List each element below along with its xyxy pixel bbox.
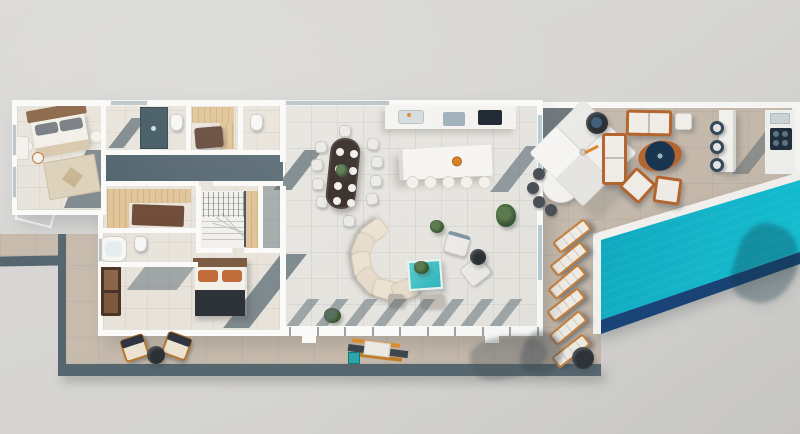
- terrace-left-strip: [66, 234, 98, 374]
- kitchen-sink: [398, 110, 424, 124]
- burner: [782, 140, 788, 146]
- island-stool: [478, 176, 491, 189]
- outdoor-sink: [770, 113, 790, 124]
- wall-openplan-west-lower: [280, 186, 286, 336]
- glass-wall-south: [285, 326, 543, 336]
- glass-mullion: [427, 327, 429, 336]
- coffee-table-plant: [414, 261, 429, 274]
- door-threshold: [302, 334, 316, 343]
- burner: [773, 140, 779, 146]
- place-setting: [348, 184, 356, 192]
- toilet: [170, 114, 183, 131]
- wall-hallway-north: [103, 150, 283, 155]
- wall-hallway-south-a: [103, 181, 199, 186]
- wall-stairs-west: [196, 186, 201, 252]
- glass-mullion: [399, 327, 401, 336]
- island-stool: [406, 176, 419, 189]
- kitchen-appliance: [443, 112, 465, 126]
- bed2-headboard: [193, 258, 247, 267]
- bathtub-basin: [105, 241, 122, 257]
- bar-stool: [710, 158, 724, 172]
- fruit-bowl: [452, 156, 463, 167]
- shower-drain: [151, 126, 156, 131]
- guest-desk: [192, 107, 234, 123]
- dining-chair: [314, 140, 328, 154]
- swimming-pool: [593, 172, 800, 334]
- side-table-round: [470, 249, 486, 265]
- bed2-blanket: [195, 290, 245, 316]
- outdoor-sofa-vertical: [602, 133, 627, 185]
- cooktop: [478, 110, 502, 125]
- hallway-floor: [103, 155, 283, 181]
- dining-chair: [366, 137, 380, 151]
- terrace-left-border: [58, 234, 66, 374]
- bbq-grill: [586, 112, 608, 134]
- burner: [773, 131, 779, 137]
- wall-master-south: [12, 210, 106, 215]
- wall-partition: [186, 105, 191, 153]
- outdoor-armchair: [652, 175, 682, 205]
- stair-tread-line: [202, 227, 244, 228]
- place-setting: [334, 182, 342, 190]
- bar-stool: [710, 121, 724, 135]
- staircase: [201, 191, 258, 248]
- dressing-counter: [107, 189, 191, 203]
- floor-plan-render: [0, 0, 800, 434]
- table-centerpiece-plant: [336, 164, 348, 177]
- stair-railing-balusters: [203, 192, 245, 217]
- sofa-cushion-seam: [605, 157, 624, 159]
- window-band: [285, 100, 390, 106]
- rug-motif: [62, 167, 83, 188]
- bathtub: [100, 236, 127, 262]
- bench-table: [363, 340, 391, 357]
- wall-partition: [238, 105, 243, 153]
- stair-tread-line: [202, 239, 244, 240]
- cube-side-table: [675, 113, 692, 130]
- window-west: [12, 166, 17, 198]
- glass-mullion: [344, 327, 346, 336]
- sink-items: [407, 113, 411, 117]
- bed2-pillow-orange: [222, 270, 242, 282]
- bbq-lid: [591, 117, 602, 128]
- place-setting: [336, 148, 344, 156]
- glass-mullion: [372, 327, 374, 336]
- dressing-mat: [132, 204, 185, 227]
- wardrobe: [101, 266, 121, 316]
- terrace-far-left-edge: [0, 255, 58, 266]
- glass-mullion: [454, 327, 456, 336]
- cooler-box: [348, 352, 360, 364]
- sofa-cushion-seam: [648, 113, 650, 133]
- shower: [140, 107, 168, 149]
- bed2-pillow-orange: [198, 270, 218, 282]
- dressing-counter-return: [107, 203, 129, 228]
- patio-chair: [533, 196, 545, 208]
- glass-mullion: [317, 327, 319, 336]
- bar-stool: [710, 140, 724, 154]
- wall-stairs-east: [258, 186, 263, 252]
- vanity-chair: [32, 152, 44, 164]
- terrace-side-table: [147, 346, 165, 364]
- tall-plant: [496, 204, 516, 227]
- glass-door-east: [538, 225, 542, 280]
- stair-tread-line: [202, 233, 244, 234]
- dining-chair: [339, 125, 351, 137]
- bedroom2-bed: [193, 258, 247, 316]
- terrace-far-left: [0, 234, 58, 256]
- glass-mullion: [482, 327, 484, 336]
- floor-plant: [430, 220, 444, 233]
- place-setting: [349, 167, 357, 175]
- wall-bath-north: [98, 228, 198, 233]
- island-stool: [460, 176, 473, 189]
- stair-wood-landing: [245, 191, 258, 248]
- terrace-north-wall: [532, 102, 800, 108]
- wall-bed2-north-a: [196, 248, 232, 253]
- outdoor-dining-bench-set: [346, 336, 410, 368]
- dining-chair: [371, 156, 383, 168]
- wall-bed2-north-b: [244, 248, 283, 253]
- window-band: [110, 100, 148, 106]
- wall-hallway-south-b: [213, 181, 283, 186]
- wardrobe-door: [104, 270, 118, 290]
- patio-chair: [533, 168, 545, 180]
- toilet: [134, 236, 147, 252]
- stair-railing: [244, 191, 246, 247]
- outdoor-kitchen: [765, 110, 795, 174]
- burner: [782, 131, 788, 137]
- kitchen-counter: [385, 106, 516, 129]
- window-bath: [98, 238, 103, 262]
- wall-bath-south: [98, 262, 198, 267]
- wall-south-bedroom: [98, 330, 290, 336]
- place-setting: [347, 199, 355, 207]
- patio-chair: [527, 182, 539, 194]
- parasol-orange-rib: [584, 145, 599, 154]
- outdoor-sofa: [626, 110, 672, 137]
- patio-chair: [545, 204, 557, 216]
- wardrobe-door: [104, 293, 118, 313]
- island-stool: [424, 176, 437, 189]
- guest-bed: [194, 126, 224, 149]
- place-setting: [333, 197, 341, 205]
- dining-chair: [343, 215, 356, 228]
- toilet: [250, 114, 263, 131]
- lounger-side-table: [572, 347, 594, 369]
- window-west: [12, 124, 17, 156]
- dining-chair: [370, 175, 383, 188]
- dining-chair: [312, 178, 325, 191]
- place-setting: [350, 150, 358, 158]
- dining-chair: [311, 159, 324, 172]
- wall-master-east: [101, 100, 106, 215]
- glass-mullion: [289, 327, 291, 336]
- outdoor-cooktop: [770, 128, 792, 150]
- island-stool: [442, 176, 455, 189]
